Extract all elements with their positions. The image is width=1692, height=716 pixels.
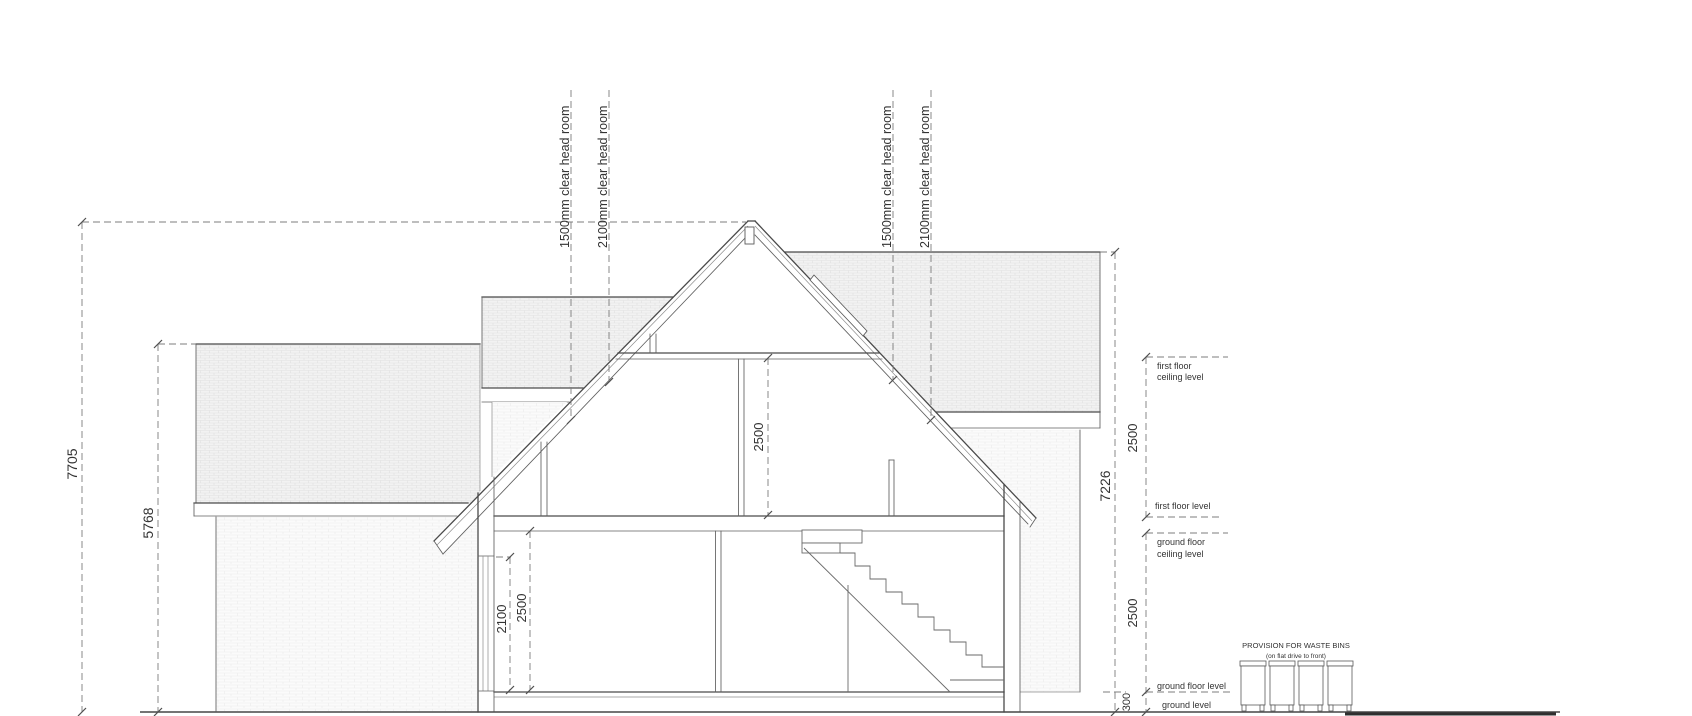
left-annex-eaves-fascia <box>194 503 468 516</box>
dim-ground-floor-room-height: 2500 <box>514 594 529 623</box>
dim-first-floor-storey: 2500 <box>1125 424 1140 453</box>
waste-bins: PROVISION FOR WASTE BINS (on flat drive … <box>1240 641 1353 711</box>
label-ground-floor-ceiling-line1: ground floor <box>1157 537 1205 547</box>
label-first-floor-level: first floor level <box>1155 501 1211 511</box>
rear-roof-plane <box>783 252 1100 428</box>
label-ground-floor-level: ground floor level <box>1157 681 1226 691</box>
waste-bins-title: PROVISION FOR WASTE BINS <box>1242 641 1350 650</box>
dim-first-floor-room-height: 2500 <box>751 423 766 452</box>
headroom-label-left-2100: 2100mm clear head room <box>596 106 610 248</box>
level-annotations: first floor ceiling level first floor le… <box>1155 361 1226 710</box>
waste-bin-4 <box>1327 661 1353 711</box>
stair-newel-post <box>889 460 894 516</box>
dim-rear-ridge-height: 7226 <box>1097 470 1113 501</box>
dim-ground-offset: 300 <box>1121 693 1133 711</box>
ridge-beam <box>745 227 754 244</box>
label-first-floor-ceiling-line2: ceiling level <box>1157 372 1204 382</box>
waste-bin-2 <box>1269 661 1295 711</box>
waste-bins-subtitle: (on flat drive to front) <box>1266 653 1326 660</box>
dim-window-head-height: 2100 <box>494 605 509 634</box>
dim-ridge-height: 7705 <box>64 448 80 479</box>
waste-bin-1 <box>1240 661 1266 711</box>
headroom-label-left-1500: 1500mm clear head room <box>558 106 572 248</box>
rear-wall <box>948 430 1080 692</box>
left-annex-roof-plane <box>196 344 480 503</box>
waste-bin-3 <box>1298 661 1324 711</box>
first-floor-internal-wall <box>739 359 745 516</box>
ground-floor-internal-wall <box>716 531 722 692</box>
label-first-floor-ceiling-line1: first floor <box>1157 361 1192 371</box>
first-floor-slab <box>494 516 1004 531</box>
first-floor-stud <box>541 442 547 516</box>
middle-roof-block <box>482 297 674 477</box>
dim-ground-floor-storey: 2500 <box>1125 599 1140 628</box>
label-ground-level: ground level <box>1162 700 1211 710</box>
staircase <box>802 530 1004 692</box>
first-floor-ceiling <box>616 353 882 359</box>
house-section-drawing: 7705 5768 7226 2500 2500 300 2100 2500 2… <box>0 0 1692 716</box>
section-right-wall <box>1004 485 1020 712</box>
main-roof-left-slope <box>434 221 748 554</box>
section-elevation-canvas: 7705 5768 7226 2500 2500 300 2100 2500 2… <box>0 0 1692 716</box>
label-ground-floor-ceiling-line2: ceiling level <box>1157 549 1204 559</box>
dim-annex-eaves-height: 5768 <box>140 507 156 538</box>
headroom-label-right-2100: 2100mm clear head room <box>918 106 932 248</box>
headroom-label-right-1500: 1500mm clear head room <box>880 106 894 248</box>
ground-floor-slab <box>494 692 1004 697</box>
